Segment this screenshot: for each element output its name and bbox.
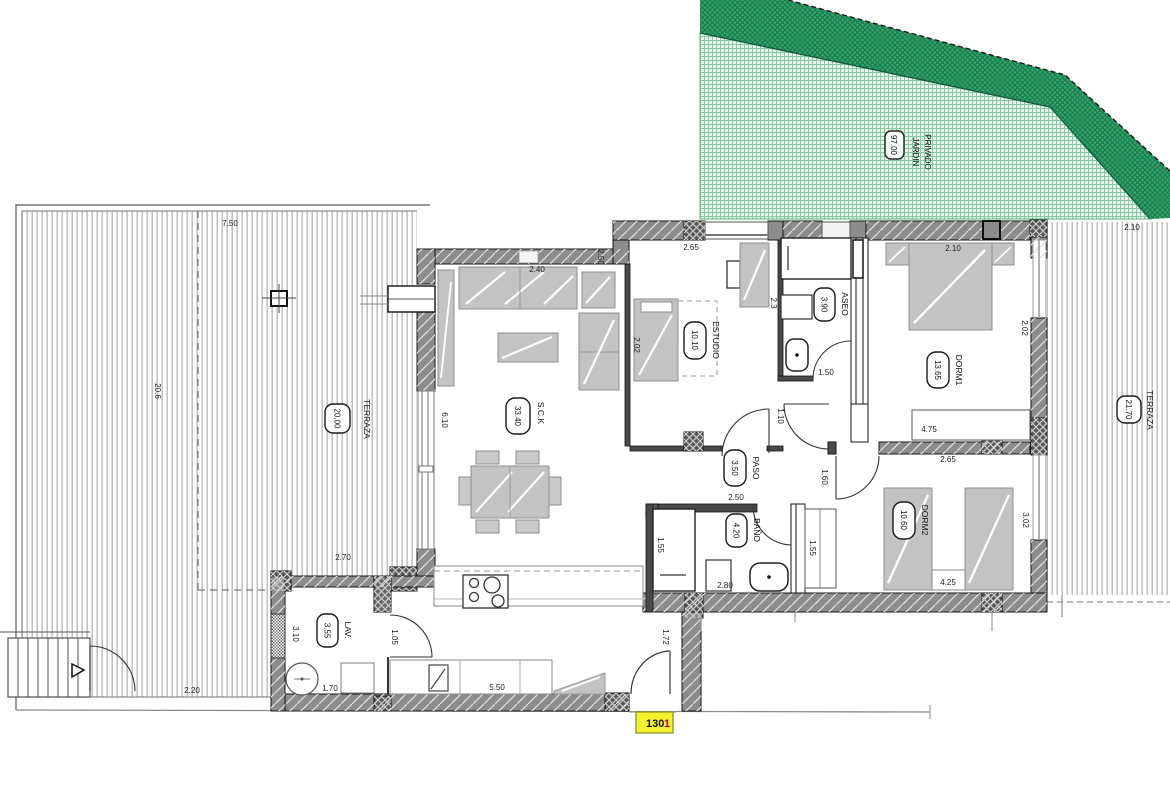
svg-text:20.00: 20.00 (333, 408, 342, 429)
svg-text:1.70: 1.70 (322, 684, 338, 693)
svg-text:ESTUDIO: ESTUDIO (711, 321, 721, 359)
svg-text:2.50: 2.50 (728, 493, 744, 502)
svg-text:3.55: 3.55 (323, 623, 332, 639)
svg-text:3.90: 3.90 (820, 297, 829, 313)
svg-text:13.65: 13.65 (933, 360, 942, 381)
svg-text:1.55: 1.55 (656, 537, 665, 553)
svg-text:2.80: 2.80 (717, 581, 733, 590)
svg-text:2.02: 2.02 (1020, 320, 1029, 336)
svg-text:DORM2: DORM2 (920, 505, 930, 536)
svg-text:3.50: 3.50 (730, 460, 739, 476)
svg-text:4.25: 4.25 (940, 578, 956, 587)
svg-text:2.65: 2.65 (683, 243, 699, 252)
svg-text:7.50: 7.50 (222, 219, 238, 228)
svg-text:20.6: 20.6 (153, 383, 162, 399)
svg-text:1.05: 1.05 (390, 629, 399, 645)
svg-text:S.C.K: S.C.K (536, 402, 546, 425)
svg-text:PASO: PASO (751, 457, 761, 480)
svg-text:130: 130 (646, 718, 664, 730)
svg-text:1.50: 1.50 (818, 368, 834, 377)
svg-text:DORM1: DORM1 (954, 355, 964, 386)
svg-text:1.10: 1.10 (776, 408, 785, 424)
svg-text:PRIVADO: PRIVADO (923, 134, 932, 169)
svg-text:6.10: 6.10 (440, 412, 449, 428)
svg-text:5.50: 5.50 (489, 683, 505, 692)
svg-text:TERRAZA: TERRAZA (1145, 390, 1155, 430)
svg-text:33.40: 33.40 (513, 406, 522, 427)
svg-text:2.65: 2.65 (940, 455, 956, 464)
svg-text:2.20: 2.20 (184, 686, 200, 695)
svg-text:2.3: 2.3 (769, 297, 778, 309)
svg-text:21.70: 21.70 (1124, 399, 1133, 420)
svg-text:3.10: 3.10 (291, 626, 300, 642)
svg-text:1.55: 1.55 (808, 540, 817, 556)
svg-text:JARDIN: JARDIN (911, 138, 920, 167)
svg-text:4.75: 4.75 (921, 425, 937, 434)
svg-text:2.10: 2.10 (945, 244, 961, 253)
svg-text:1.60: 1.60 (820, 469, 829, 485)
svg-text:TERRAZA: TERRAZA (362, 399, 372, 439)
svg-text:97.00: 97.00 (889, 135, 898, 156)
svg-text:2.70: 2.70 (335, 553, 351, 562)
svg-text:4.20: 4.20 (732, 523, 741, 539)
svg-text:2.40: 2.40 (529, 265, 545, 274)
svg-text:10.60: 10.60 (899, 510, 908, 531)
svg-text:BAÑO: BAÑO (752, 518, 762, 542)
svg-text:1.72: 1.72 (661, 629, 670, 645)
svg-text:2.10: 2.10 (1124, 223, 1140, 232)
svg-text:2.02: 2.02 (632, 337, 641, 353)
svg-text:2.50: 2.50 (596, 249, 605, 265)
svg-text:3.02: 3.02 (1021, 512, 1030, 528)
svg-text:1: 1 (664, 718, 670, 730)
svg-text:LAV.: LAV. (343, 621, 353, 638)
svg-text:ASEO: ASEO (840, 292, 850, 316)
svg-text:10.10: 10.10 (690, 330, 699, 351)
